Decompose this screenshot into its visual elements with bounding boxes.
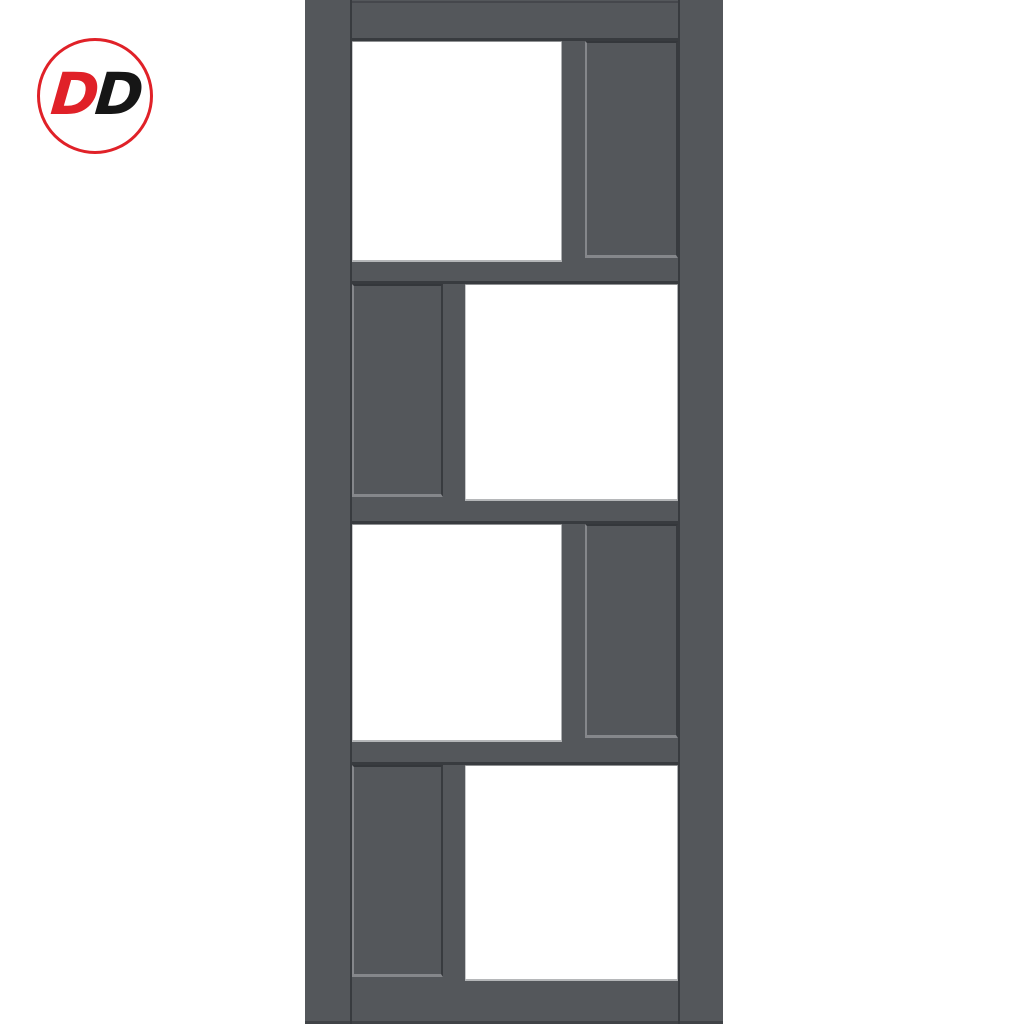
recessed-solid-panel [585,41,678,258]
product-image-canvas: DD [0,0,1024,1024]
logo-text: DD [48,65,142,127]
door-row-2 [352,284,678,501]
glazed-panel [465,284,678,501]
door-right-stile [680,0,723,1024]
recessed-solid-panel [352,284,443,497]
door-row-1 [352,41,678,262]
glazed-panel [352,41,562,262]
direct-doors-logo: DD [37,38,153,154]
door [305,0,723,1024]
logo-letter-d-black: D [92,60,142,128]
recessed-solid-panel [352,765,443,977]
top-rail-edge-line [352,1,678,3]
door-row-3 [352,524,678,742]
right-stile-joint-line [678,0,680,1024]
door-left-stile [305,0,350,1024]
door-row-4 [352,765,678,981]
logo-letter-d-red: D [48,60,98,128]
recessed-solid-panel [585,524,678,738]
glazed-panel [465,765,678,981]
glazed-panel [352,524,562,742]
